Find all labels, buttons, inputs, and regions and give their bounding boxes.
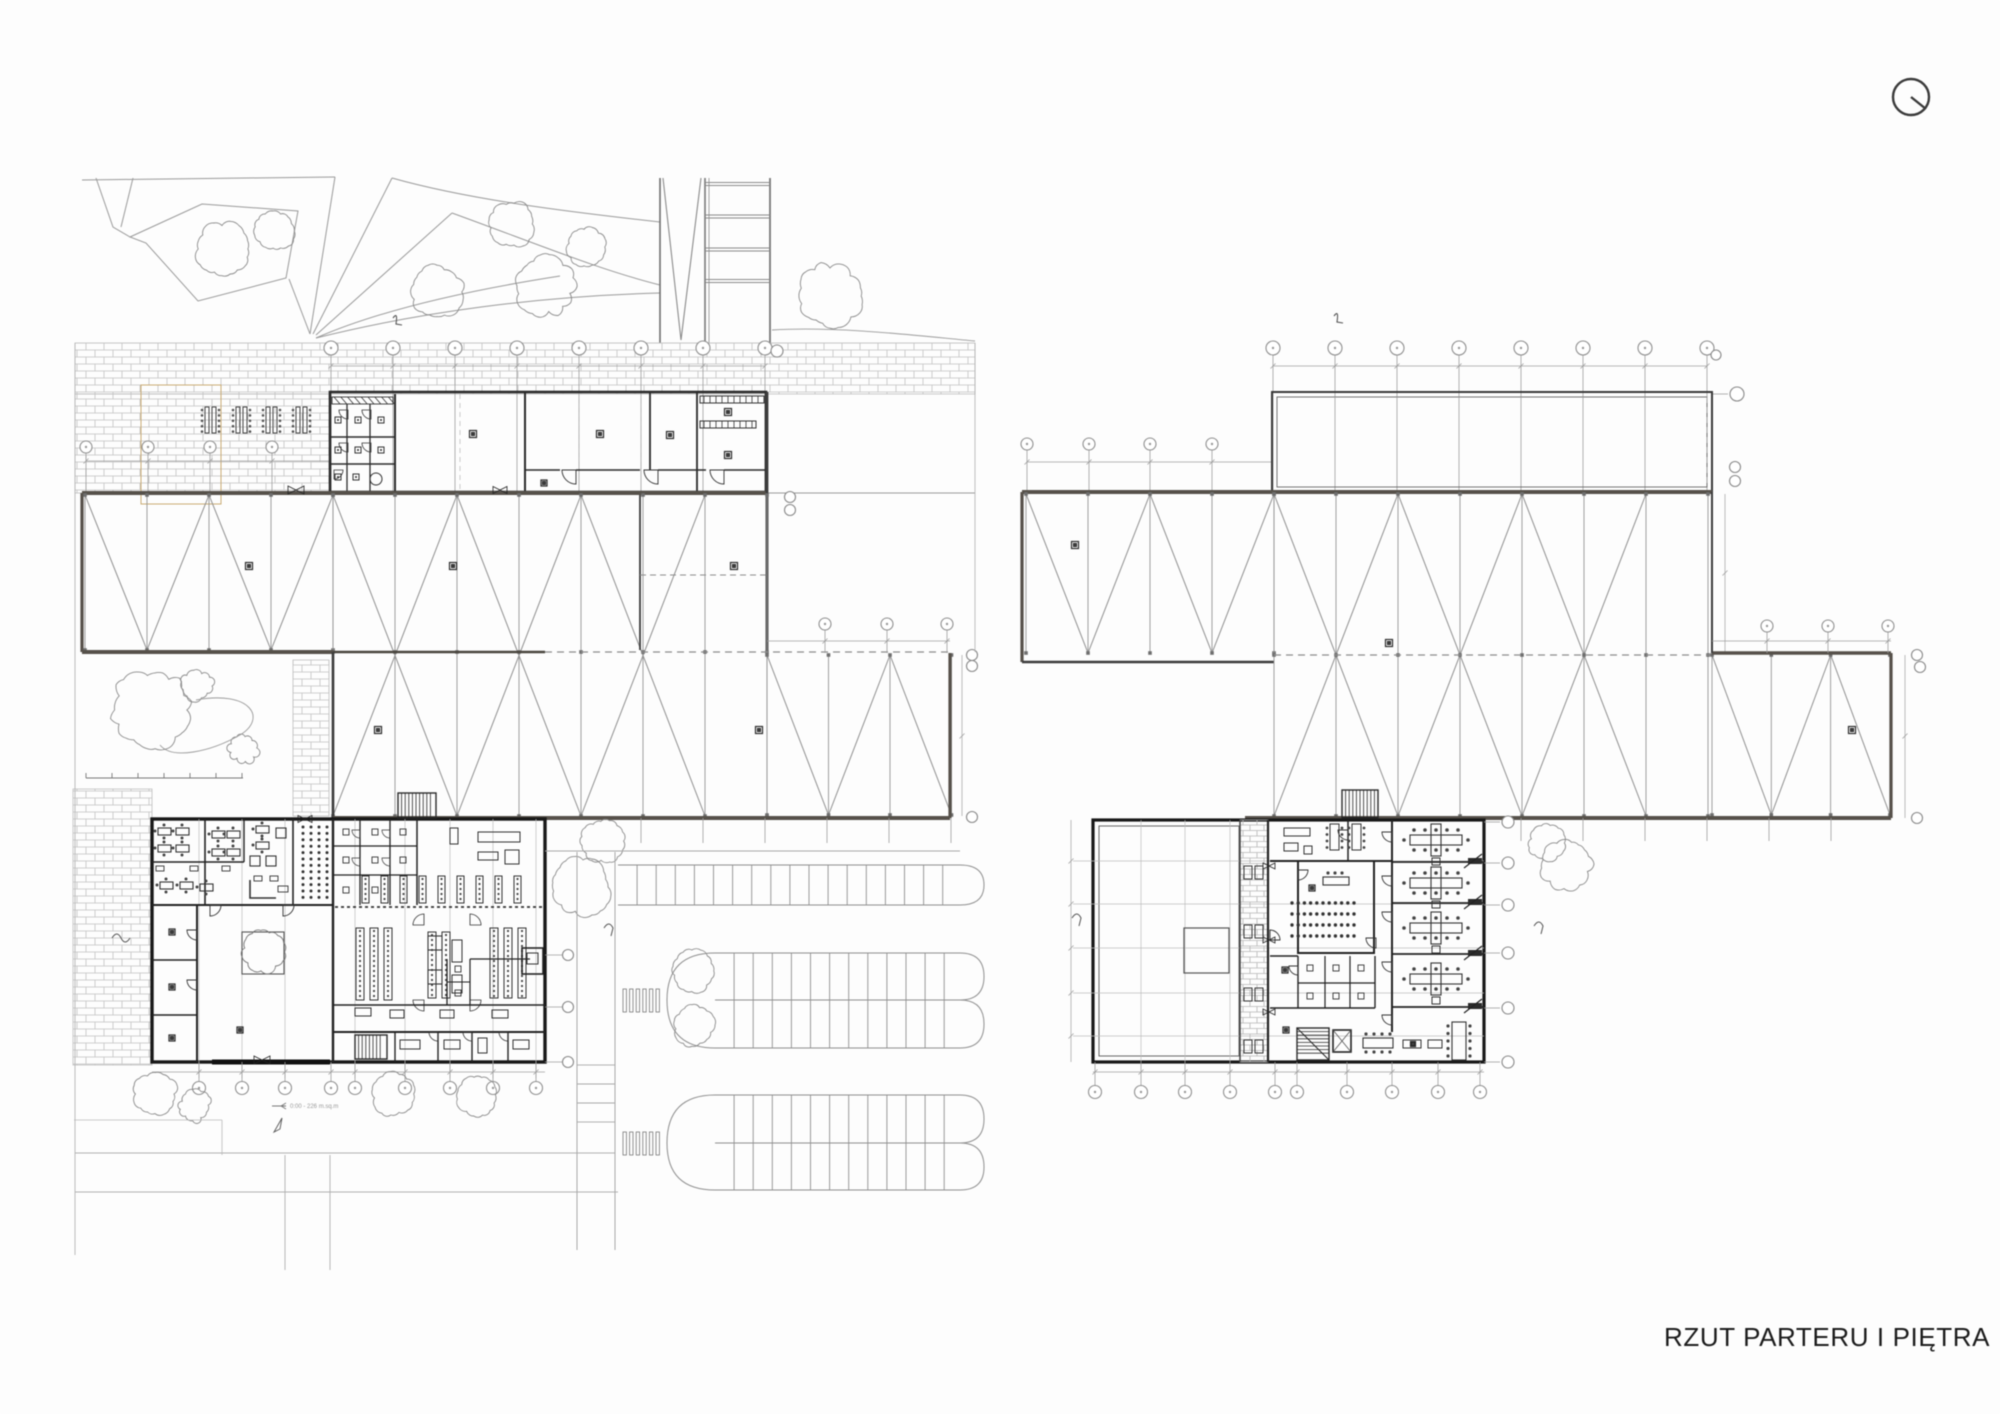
- svg-text:RZUT PARTERU I PIĘTRA: RZUT PARTERU I PIĘTRA: [1664, 1322, 1990, 1352]
- svg-text:0:00 - 226 m.sq.m: 0:00 - 226 m.sq.m: [290, 1104, 338, 1110]
